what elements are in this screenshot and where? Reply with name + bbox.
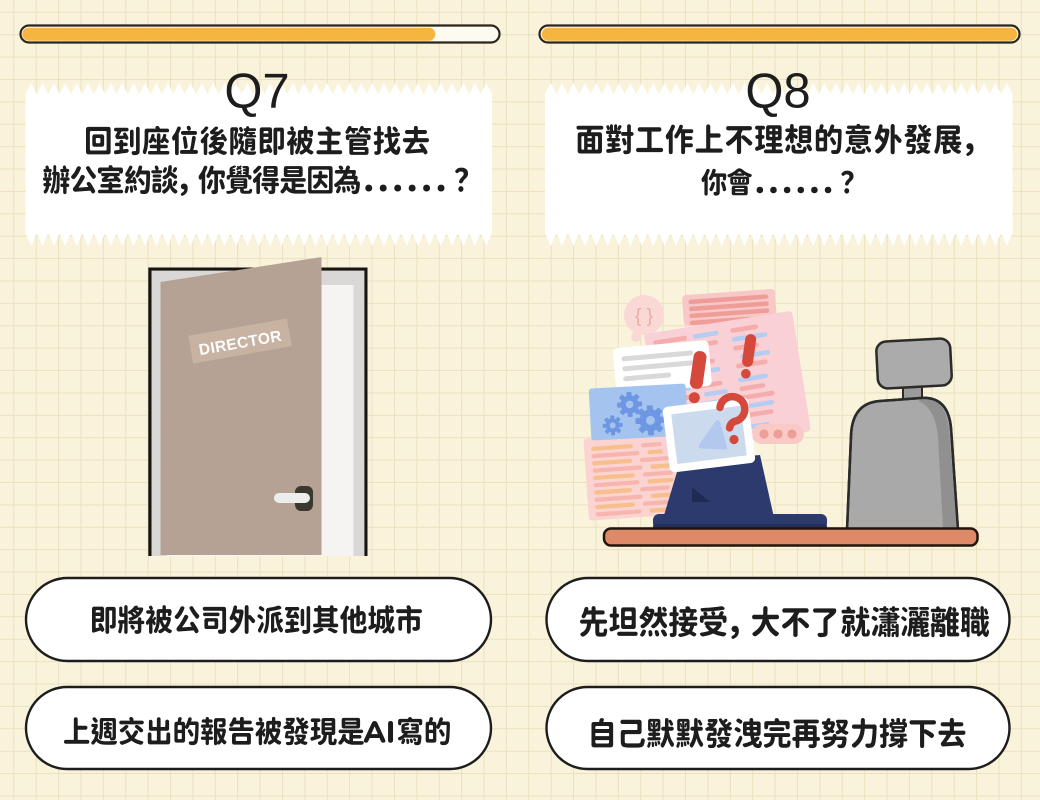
svg-text:{ }: { }: [635, 306, 653, 327]
svg-text:Q7: Q7: [224, 65, 289, 119]
svg-text:Q8: Q8: [745, 65, 810, 119]
